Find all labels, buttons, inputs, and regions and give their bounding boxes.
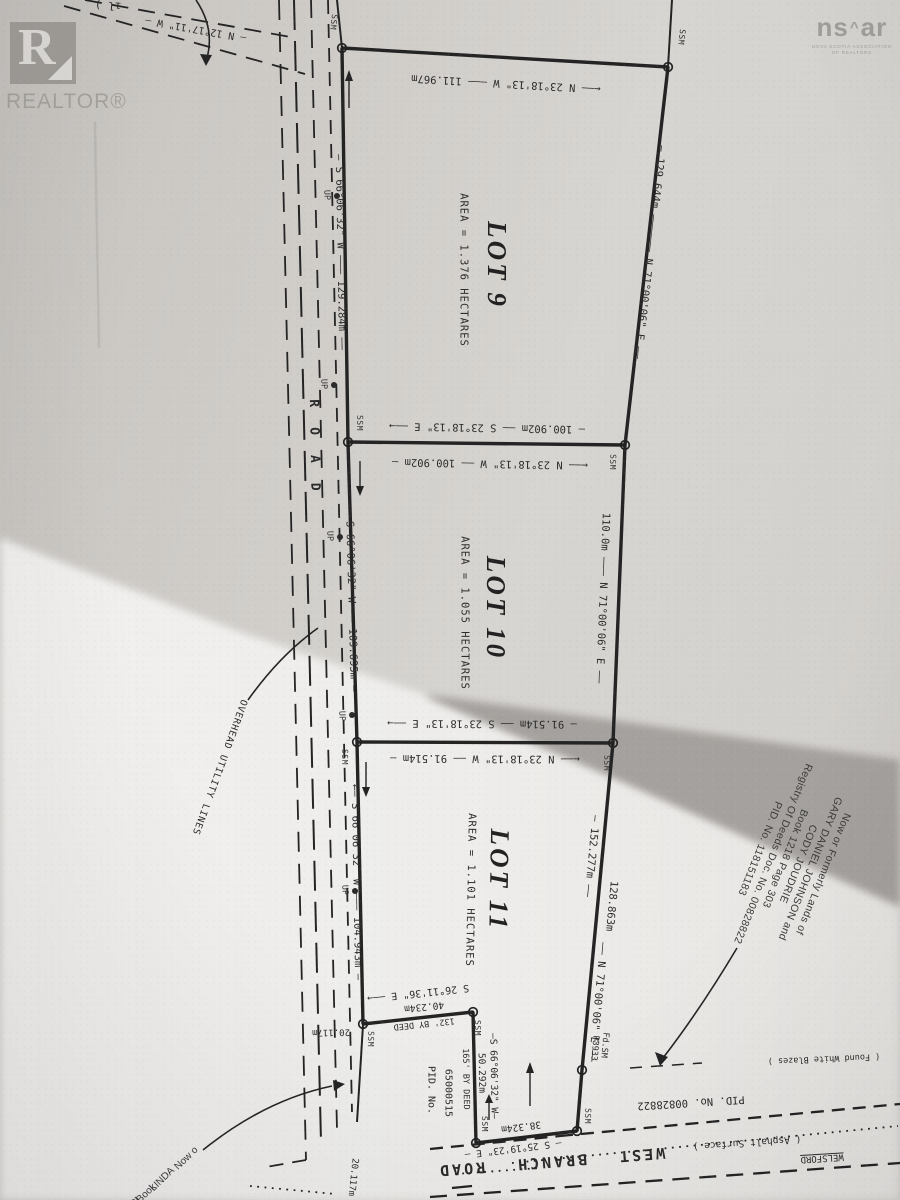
ssm-label: SSM	[366, 1031, 375, 1047]
survey-plan-photo: — N 12°17'11" W — ıl ) ←—— N 23°18'13" W…	[0, 0, 900, 1200]
lot11-area: AREA = 1.101 HECTARES	[463, 813, 477, 967]
dist-50292: 50.292m	[476, 1053, 487, 1093]
up-label: UP	[321, 190, 330, 200]
nsar-subtitle2: OF REALTORS	[812, 50, 892, 55]
fdsm-number: P3933	[588, 1035, 599, 1061]
pid-parcel-number: 65000515	[442, 1069, 453, 1117]
lot10-area: AREA = 1.055 HECTARES	[458, 536, 469, 690]
lot10-title: LOT 10	[482, 556, 510, 660]
nsar-ar: ar	[861, 12, 888, 42]
ssm-label: SSM	[340, 749, 349, 765]
ssm-label: SSM	[602, 755, 611, 771]
deed-165: 165' BY DEED	[460, 1048, 470, 1110]
ssm-label: SSM	[608, 454, 617, 470]
bearing-s6606-short: —S 66°06'32" W—	[487, 1033, 498, 1119]
road-vertical-label: ROAD	[306, 399, 322, 511]
bearing-div910-south: — 100.902m —— S 23°18'13" E ——→	[389, 420, 585, 434]
realtor-watermark: R REALTOR®	[6, 22, 127, 114]
nsar-roof-icon: ^	[850, 17, 860, 39]
ssm-label: SSM	[473, 1020, 481, 1036]
bearing-div1011-south: — 91.514m —— S 23°18'13" E ——→	[387, 717, 577, 729]
realtor-triangle	[48, 56, 72, 80]
lot11-title: LOT 11	[484, 828, 514, 931]
ssm-label: SSM	[480, 1116, 488, 1132]
top-edge-fragment: ıl )	[94, 0, 121, 12]
bearing-div1011-north: ←—— N 23°18'13" W —— 91.514m —	[390, 752, 580, 764]
dist-20117-strip: 20.117m	[312, 1026, 350, 1036]
ssm-label: SSM	[355, 415, 364, 431]
realtor-wordmark: REALTOR®	[6, 90, 127, 114]
ssm-label: SSM	[583, 1108, 592, 1124]
nsar-ns: ns	[817, 12, 849, 42]
up-label: UP	[324, 531, 333, 541]
lot9-area: AREA = 1.376 HECTARES	[457, 193, 468, 347]
up-label: UP	[339, 885, 348, 895]
bearing-div910-north: ←—— N 23°18'13" W —— 100.902m —	[392, 456, 588, 470]
lot9-title: LOT 9	[483, 221, 511, 309]
welsford-label: WELSFORD	[800, 1151, 844, 1163]
realtor-block-r-icon: R	[10, 22, 76, 84]
bearing-lot9-west: — S 66°06'32" W ——— 129.284m ——	[333, 154, 347, 350]
nsar-logo: ns^ar NOVA SCOTIA ASSOCIATION OF REALTOR…	[812, 16, 892, 55]
pid-parcel-label: PID. No.	[425, 1066, 436, 1114]
ssm-label: SSM	[328, 14, 338, 31]
nsar-subtitle: NOVA SCOTIA ASSOCIATION	[812, 44, 892, 49]
up-label: UP	[318, 379, 327, 389]
bearing-lot11-west: ←— S 66°06'32" W ——— 104.943m —	[349, 784, 363, 980]
up-label: UP	[336, 711, 345, 721]
ssm-label: SSM	[676, 29, 686, 46]
